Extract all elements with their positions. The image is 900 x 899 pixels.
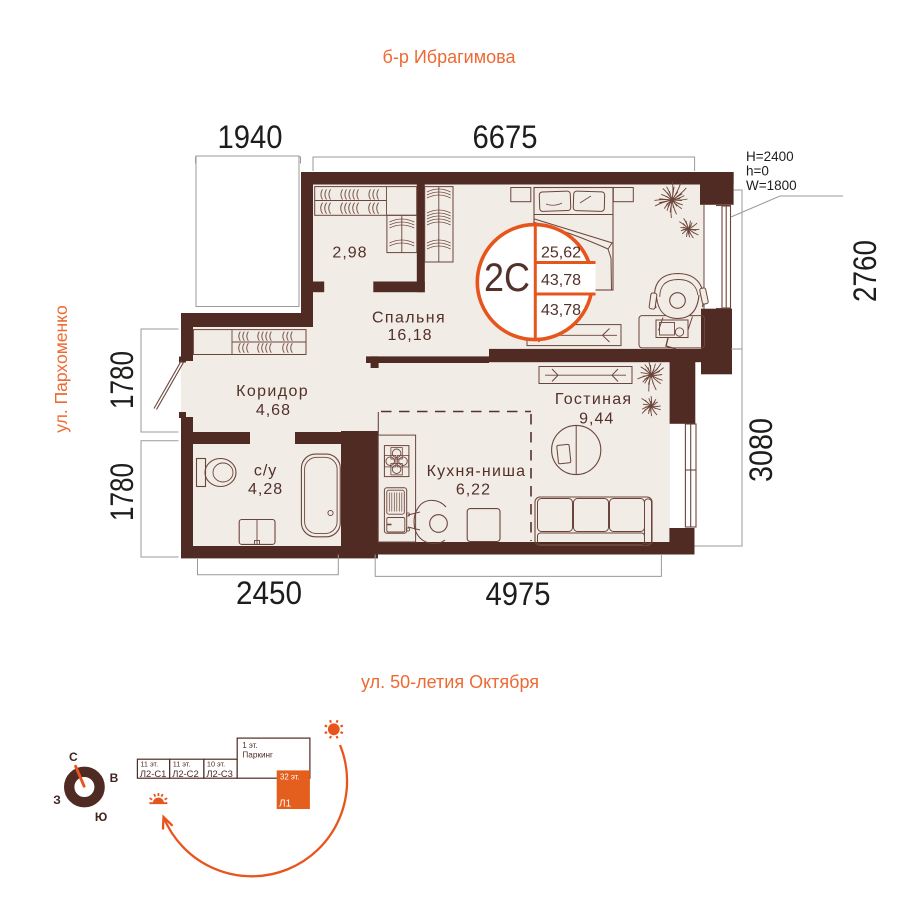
svg-text:10 эт.: 10 эт. — [207, 759, 225, 768]
svg-text:Л2-С2: Л2-С2 — [172, 768, 198, 779]
svg-text:9,44: 9,44 — [579, 411, 614, 428]
svg-text:1780: 1780 — [104, 463, 140, 521]
svg-text:С: С — [69, 750, 78, 764]
svg-text:W=1800: W=1800 — [746, 178, 797, 193]
svg-text:6675: 6675 — [473, 119, 538, 155]
svg-text:с/у: с/у — [254, 463, 277, 480]
svg-text:ул. Пархоменко: ул. Пархоменко — [51, 305, 71, 432]
svg-text:H=2400: H=2400 — [746, 149, 794, 164]
svg-text:3080: 3080 — [743, 418, 779, 482]
svg-text:Кухня-ниша: Кухня-ниша — [427, 463, 527, 480]
svg-text:Ю: Ю — [95, 810, 107, 824]
svg-text:6,22: 6,22 — [456, 482, 491, 499]
svg-text:ул. 50-летия Октября: ул. 50-летия Октября — [361, 672, 539, 692]
svg-text:Коридор: Коридор — [236, 383, 309, 400]
svg-text:Л1: Л1 — [279, 799, 292, 810]
svg-text:1780: 1780 — [104, 351, 140, 409]
svg-text:43,78: 43,78 — [541, 302, 581, 319]
svg-text:2450: 2450 — [236, 575, 302, 611]
svg-text:16,18: 16,18 — [387, 327, 432, 344]
svg-text:11 эт.: 11 эт. — [140, 759, 158, 768]
svg-text:43,78: 43,78 — [541, 272, 581, 289]
svg-text:б-р Ибрагимова: б-р Ибрагимова — [383, 47, 517, 67]
svg-text:Л2-С3: Л2-С3 — [206, 768, 232, 779]
svg-text:Спальня: Спальня — [372, 310, 446, 327]
svg-text:Л2-С1: Л2-С1 — [140, 768, 166, 779]
svg-text:В: В — [110, 771, 119, 785]
svg-text:1 эт.: 1 эт. — [242, 741, 257, 750]
svg-text:4,28: 4,28 — [248, 481, 283, 498]
svg-text:4975: 4975 — [486, 576, 551, 612]
svg-text:1940: 1940 — [218, 119, 283, 155]
svg-text:Паркинг: Паркинг — [242, 751, 273, 760]
svg-text:4,68: 4,68 — [256, 402, 291, 419]
svg-text:25,62: 25,62 — [541, 245, 581, 262]
svg-text:h=0: h=0 — [746, 164, 769, 179]
svg-text:2760: 2760 — [847, 240, 883, 302]
svg-text:З: З — [53, 793, 61, 807]
svg-text:11 эт.: 11 эт. — [173, 759, 191, 768]
svg-text:Гостиная: Гостиная — [555, 391, 633, 408]
svg-text:2С: 2С — [484, 256, 530, 300]
svg-text:2,98: 2,98 — [332, 245, 367, 262]
svg-text:32 эт.: 32 эт. — [280, 773, 300, 782]
